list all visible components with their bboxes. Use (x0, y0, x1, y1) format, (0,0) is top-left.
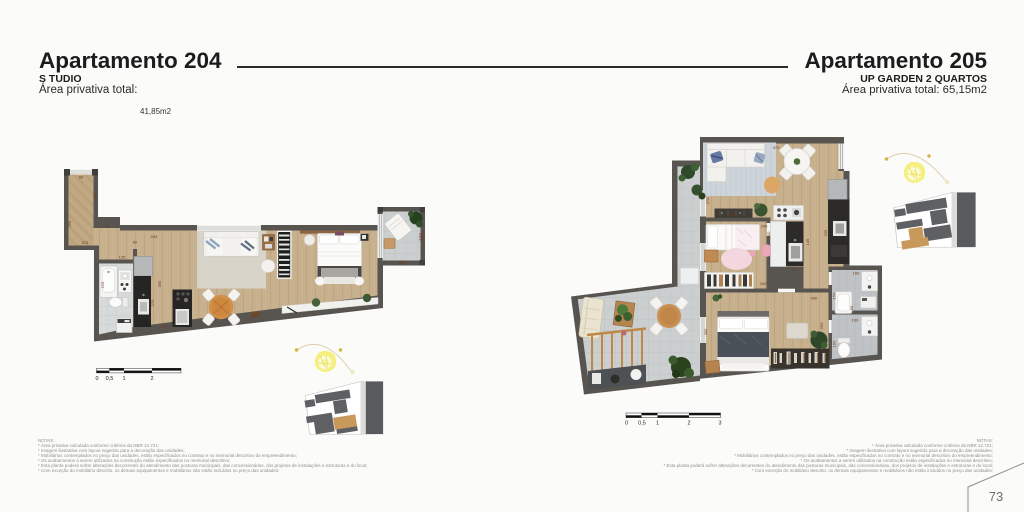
svg-text:0,5: 0,5 (638, 421, 646, 427)
svg-text:150: 150 (832, 340, 837, 347)
svg-text:205: 205 (823, 229, 828, 236)
svg-text:470: 470 (773, 145, 780, 150)
svg-text:90: 90 (849, 305, 854, 310)
svg-text:145: 145 (805, 238, 810, 245)
svg-text:250: 250 (819, 322, 824, 329)
svg-text:73: 73 (989, 489, 1003, 504)
svg-text:270: 270 (705, 197, 710, 204)
svg-text:160: 160 (853, 271, 860, 276)
svg-text:1: 1 (656, 421, 659, 427)
svg-text:340: 340 (760, 281, 767, 286)
svg-text:160: 160 (852, 318, 859, 323)
svg-text:3: 3 (718, 421, 721, 427)
svg-text:150: 150 (832, 292, 837, 299)
svg-text:0: 0 (625, 421, 628, 427)
svg-text:200: 200 (766, 231, 771, 238)
svg-text:430: 430 (811, 296, 818, 301)
svg-text:300: 300 (703, 328, 708, 335)
svg-text:300: 300 (730, 212, 737, 217)
svg-text:240: 240 (761, 224, 768, 229)
svg-text:2: 2 (687, 421, 690, 427)
svg-text:80: 80 (793, 267, 798, 272)
